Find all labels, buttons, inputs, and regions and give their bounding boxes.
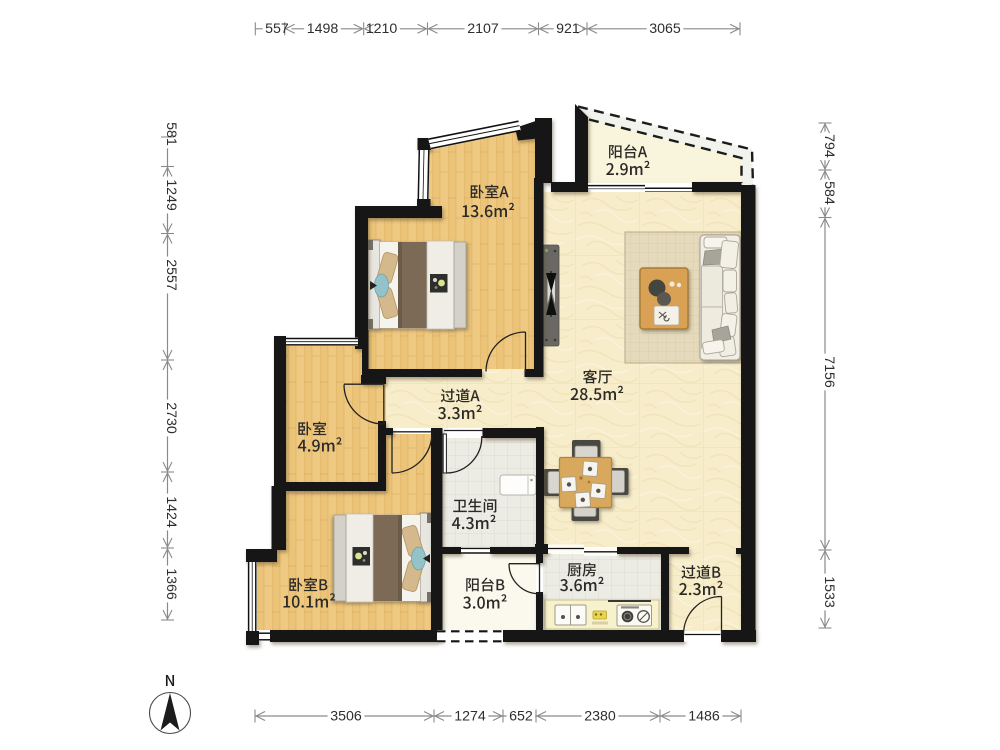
svg-text:2107: 2107 <box>467 21 499 37</box>
svg-text:581: 581 <box>163 122 179 146</box>
svg-text:1486: 1486 <box>688 708 720 724</box>
svg-text:3065: 3065 <box>649 21 681 37</box>
svg-text:3506: 3506 <box>330 708 362 724</box>
svg-text:1210: 1210 <box>366 21 398 37</box>
svg-text:794: 794 <box>821 134 837 158</box>
svg-text:557: 557 <box>265 21 289 37</box>
svg-text:1366: 1366 <box>163 568 179 600</box>
svg-text:1274: 1274 <box>454 708 486 724</box>
svg-text:2730: 2730 <box>163 402 179 434</box>
svg-text:1533: 1533 <box>821 576 837 608</box>
svg-text:652: 652 <box>509 708 533 724</box>
svg-text:921: 921 <box>556 21 580 37</box>
svg-text:1498: 1498 <box>307 21 339 37</box>
svg-text:584: 584 <box>821 181 837 205</box>
svg-text:2557: 2557 <box>163 259 179 291</box>
svg-text:7156: 7156 <box>821 356 837 388</box>
svg-text:1424: 1424 <box>163 496 179 528</box>
svg-text:1249: 1249 <box>163 179 179 211</box>
svg-text:2380: 2380 <box>584 708 616 724</box>
